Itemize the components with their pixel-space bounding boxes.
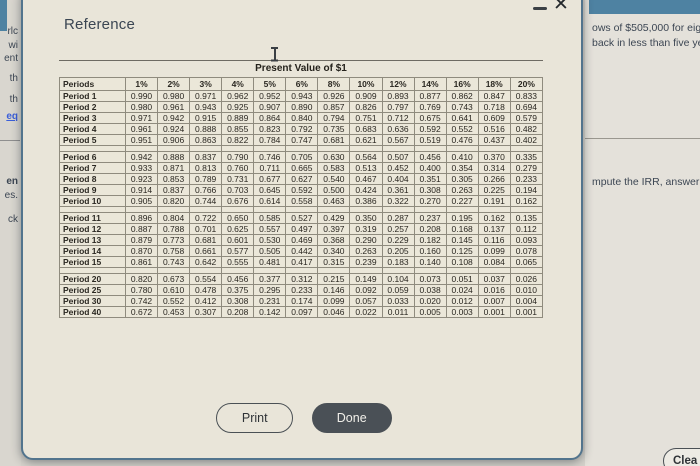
pv-value-cell: 0.555 bbox=[222, 257, 254, 268]
pv-value-cell: 0.585 bbox=[254, 213, 286, 224]
pv-value-cell: 0.361 bbox=[382, 185, 414, 196]
bg-text-fragment: es. bbox=[0, 190, 18, 201]
pv-value-cell: 0.208 bbox=[222, 307, 254, 318]
table-row: Period 40.9610.9240.8880.8550.8230.7920.… bbox=[60, 124, 543, 135]
pv-value-cell: 0.744 bbox=[190, 196, 222, 207]
pv-value-cell: 0.933 bbox=[126, 163, 158, 174]
pv-value-cell: 0.020 bbox=[414, 296, 446, 307]
pv-value-cell: 0.266 bbox=[478, 174, 510, 185]
pv-value-cell: 0.290 bbox=[350, 235, 382, 246]
pv-value-cell: 0.758 bbox=[158, 246, 190, 257]
pv-value-cell: 0.925 bbox=[222, 102, 254, 113]
pv-value-cell: 0.007 bbox=[478, 296, 510, 307]
column-header: 10% bbox=[350, 78, 382, 91]
pv-value-cell: 0.160 bbox=[414, 246, 446, 257]
bg-text-fragment: en bbox=[0, 176, 18, 187]
pv-value-cell: 0.813 bbox=[190, 163, 222, 174]
pv-value-cell: 0.857 bbox=[318, 102, 350, 113]
pv-value-cell: 0.676 bbox=[222, 196, 254, 207]
pv-value-cell: 0.833 bbox=[510, 91, 542, 102]
bg-text-fragment: rlc bbox=[0, 26, 18, 37]
pv-value-cell: 0.893 bbox=[382, 91, 414, 102]
column-header: 16% bbox=[446, 78, 478, 91]
pv-value-cell: 0.227 bbox=[446, 196, 478, 207]
table-row: Period 100.9050.8200.7440.6760.6140.5580… bbox=[60, 196, 543, 207]
pv-value-cell: 0.279 bbox=[510, 163, 542, 174]
background-page-right: ows of $505,000 for eigh back in less th… bbox=[585, 0, 700, 466]
pv-value-cell: 0.183 bbox=[382, 257, 414, 268]
pv-value-cell: 0.942 bbox=[158, 113, 190, 124]
pv-value-cell: 0.694 bbox=[510, 102, 542, 113]
pv-value-cell: 0.016 bbox=[478, 285, 510, 296]
table-row: Period 20.9800.9610.9430.9250.9070.8900.… bbox=[60, 102, 543, 113]
pv-value-cell: 0.888 bbox=[190, 124, 222, 135]
pv-value-cell: 0.766 bbox=[190, 185, 222, 196]
table-row: Period 400.6720.4530.3070.2080.1420.0970… bbox=[60, 307, 543, 318]
pv-value-cell: 0.010 bbox=[510, 285, 542, 296]
pv-value-cell: 0.769 bbox=[414, 102, 446, 113]
pv-value-cell: 0.354 bbox=[446, 163, 478, 174]
pv-value-cell: 0.711 bbox=[254, 163, 286, 174]
bg-text-fragment: th bbox=[0, 94, 18, 105]
pv-value-cell: 0.370 bbox=[478, 152, 510, 163]
pv-value-cell: 0.889 bbox=[222, 113, 254, 124]
pv-value-cell: 0.497 bbox=[286, 224, 318, 235]
pv-value-cell: 0.162 bbox=[510, 196, 542, 207]
pv-value-cell: 0.476 bbox=[446, 135, 478, 146]
pv-value-cell: 0.980 bbox=[158, 91, 190, 102]
column-header: 6% bbox=[286, 78, 318, 91]
table-row: Period 70.9330.8710.8130.7600.7110.6650.… bbox=[60, 163, 543, 174]
pv-value-cell: 0.084 bbox=[478, 257, 510, 268]
pv-value-cell: 0.022 bbox=[350, 307, 382, 318]
pv-value-cell: 0.340 bbox=[318, 246, 350, 257]
pv-value-cell: 0.463 bbox=[318, 196, 350, 207]
pv-value-cell: 0.059 bbox=[382, 285, 414, 296]
pv-value-cell: 0.099 bbox=[318, 296, 350, 307]
pv-value-cell: 0.237 bbox=[414, 213, 446, 224]
pv-value-cell: 0.429 bbox=[318, 213, 350, 224]
pv-value-cell: 0.847 bbox=[478, 91, 510, 102]
pv-value-cell: 0.097 bbox=[286, 307, 318, 318]
table-row: Period 10.9900.9800.9710.9620.9520.9430.… bbox=[60, 91, 543, 102]
dialog-title: Reference bbox=[64, 16, 135, 33]
pv-value-cell: 0.099 bbox=[478, 246, 510, 257]
pv-value-cell: 0.760 bbox=[222, 163, 254, 174]
column-header: 12% bbox=[382, 78, 414, 91]
pv-value-cell: 0.625 bbox=[222, 224, 254, 235]
period-label: Period 25 bbox=[60, 285, 126, 296]
pv-value-cell: 0.746 bbox=[254, 152, 286, 163]
column-header: 1% bbox=[126, 78, 158, 91]
table-row: Period 60.9420.8880.8370.7900.7460.7050.… bbox=[60, 152, 543, 163]
pv-value-cell: 0.701 bbox=[190, 224, 222, 235]
pv-value-cell: 0.093 bbox=[510, 235, 542, 246]
pv-value-cell: 0.864 bbox=[254, 113, 286, 124]
pv-value-cell: 0.125 bbox=[446, 246, 478, 257]
period-label: Period 5 bbox=[60, 135, 126, 146]
pv-value-cell: 0.191 bbox=[478, 196, 510, 207]
pv-value-cell: 0.990 bbox=[126, 91, 158, 102]
reference-dialog: Reference ✕ Present Value of $1 Periods1… bbox=[21, 0, 583, 460]
pv-value-cell: 0.877 bbox=[414, 91, 446, 102]
pv-value-cell: 0.926 bbox=[318, 91, 350, 102]
pv-value-cell: 0.888 bbox=[158, 152, 190, 163]
pv-value-cell: 0.424 bbox=[350, 185, 382, 196]
pv-value-cell: 0.135 bbox=[510, 213, 542, 224]
pv-value-cell: 0.905 bbox=[126, 196, 158, 207]
pv-value-cell: 0.142 bbox=[254, 307, 286, 318]
period-label: Period 9 bbox=[60, 185, 126, 196]
pv-value-cell: 0.519 bbox=[414, 135, 446, 146]
pv-value-cell: 0.037 bbox=[478, 274, 510, 285]
pv-value-cell: 0.636 bbox=[382, 124, 414, 135]
pv-value-cell: 0.712 bbox=[382, 113, 414, 124]
pv-value-cell: 0.442 bbox=[286, 246, 318, 257]
pv-value-cell: 0.377 bbox=[254, 274, 286, 285]
pv-value-cell: 0.951 bbox=[126, 135, 158, 146]
pv-value-cell: 0.149 bbox=[350, 274, 382, 285]
pv-value-cell: 0.853 bbox=[158, 174, 190, 185]
pv-value-cell: 0.665 bbox=[286, 163, 318, 174]
bg-question-text: back in less than five yea bbox=[592, 37, 700, 49]
column-header: 3% bbox=[190, 78, 222, 91]
table-row: Period 30.9710.9420.9150.8890.8640.8400.… bbox=[60, 113, 543, 124]
pv-value-cell: 0.270 bbox=[414, 196, 446, 207]
table-row: Period 250.7800.6100.4780.3750.2950.2330… bbox=[60, 285, 543, 296]
pv-value-cell: 0.961 bbox=[158, 102, 190, 113]
pv-value-cell: 0.683 bbox=[350, 124, 382, 135]
pv-value-cell: 0.003 bbox=[446, 307, 478, 318]
pv-value-cell: 0.024 bbox=[446, 285, 478, 296]
pv-value-cell: 0.862 bbox=[446, 91, 478, 102]
pv-value-cell: 0.001 bbox=[478, 307, 510, 318]
pv-value-cell: 0.577 bbox=[222, 246, 254, 257]
pv-value-cell: 0.780 bbox=[126, 285, 158, 296]
background-page-left: rlc wi ent th th eq en es. ck bbox=[0, 0, 21, 466]
pv-value-cell: 0.722 bbox=[190, 213, 222, 224]
table-row: Period 300.7420.5520.4120.3080.2310.1740… bbox=[60, 296, 543, 307]
pv-value-cell: 0.943 bbox=[190, 102, 222, 113]
pv-value-cell: 0.837 bbox=[158, 185, 190, 196]
pv-value-cell: 0.386 bbox=[350, 196, 382, 207]
pv-value-cell: 0.375 bbox=[222, 285, 254, 296]
period-label: Period 10 bbox=[60, 196, 126, 207]
table-row: Period 90.9140.8370.7660.7030.6450.5920.… bbox=[60, 185, 543, 196]
pv-value-cell: 0.456 bbox=[222, 274, 254, 285]
bg-text-fragment: ent bbox=[0, 53, 18, 64]
pv-value-cell: 0.453 bbox=[158, 307, 190, 318]
pv-value-cell: 0.233 bbox=[510, 174, 542, 185]
pv-value-cell: 0.863 bbox=[190, 135, 222, 146]
minimize-icon[interactable] bbox=[533, 7, 547, 10]
pv-value-cell: 0.924 bbox=[158, 124, 190, 135]
pv-value-cell: 0.804 bbox=[158, 213, 190, 224]
pv-value-cell: 0.705 bbox=[286, 152, 318, 163]
pv-value-cell: 0.305 bbox=[446, 174, 478, 185]
pv-value-cell: 0.404 bbox=[382, 174, 414, 185]
pv-value-cell: 0.162 bbox=[478, 213, 510, 224]
pv-value-cell: 0.182 bbox=[414, 235, 446, 246]
pv-value-cell: 0.308 bbox=[414, 185, 446, 196]
pv-table-section: Present Value of $1 Periods1%2%3%4%5%6%8… bbox=[59, 60, 543, 318]
pv-value-cell: 0.962 bbox=[222, 91, 254, 102]
pv-value-cell: 0.307 bbox=[190, 307, 222, 318]
pv-value-cell: 0.038 bbox=[414, 285, 446, 296]
pv-value-cell: 0.112 bbox=[510, 224, 542, 235]
pv-value-cell: 0.452 bbox=[382, 163, 414, 174]
pv-value-cell: 0.469 bbox=[286, 235, 318, 246]
pv-value-cell: 0.263 bbox=[446, 185, 478, 196]
pv-value-cell: 0.703 bbox=[222, 185, 254, 196]
pv-value-cell: 0.747 bbox=[286, 135, 318, 146]
pv-value-cell: 0.505 bbox=[254, 246, 286, 257]
period-label: Period 7 bbox=[60, 163, 126, 174]
pv-value-cell: 0.909 bbox=[350, 91, 382, 102]
period-label: Period 4 bbox=[60, 124, 126, 135]
table-row: Period 200.8200.6730.5540.4560.3770.3120… bbox=[60, 274, 543, 285]
period-label: Period 15 bbox=[60, 257, 126, 268]
pv-value-cell: 0.295 bbox=[254, 285, 286, 296]
pv-value-cell: 0.231 bbox=[254, 296, 286, 307]
bg-divider bbox=[585, 138, 700, 139]
pv-value-cell: 0.116 bbox=[478, 235, 510, 246]
pv-value-cell: 0.870 bbox=[126, 246, 158, 257]
pv-value-cell: 0.402 bbox=[510, 135, 542, 146]
pv-value-cell: 0.417 bbox=[286, 257, 318, 268]
pv-value-cell: 0.140 bbox=[414, 257, 446, 268]
pv-value-cell: 0.681 bbox=[318, 135, 350, 146]
pv-value-cell: 0.788 bbox=[158, 224, 190, 235]
pv-value-cell: 0.610 bbox=[158, 285, 190, 296]
pv-value-cell: 0.239 bbox=[350, 257, 382, 268]
pv-value-cell: 0.012 bbox=[446, 296, 478, 307]
pv-value-cell: 0.092 bbox=[350, 285, 382, 296]
pv-value-cell: 0.879 bbox=[126, 235, 158, 246]
pv-value-cell: 0.840 bbox=[286, 113, 318, 124]
pv-value-cell: 0.500 bbox=[318, 185, 350, 196]
pv-value-cell: 0.942 bbox=[126, 152, 158, 163]
pv-value-cell: 0.046 bbox=[318, 307, 350, 318]
period-label: Period 12 bbox=[60, 224, 126, 235]
print-button[interactable]: Print bbox=[216, 403, 293, 433]
pv-value-cell: 0.145 bbox=[446, 235, 478, 246]
pv-value-cell: 0.065 bbox=[510, 257, 542, 268]
pv-value-cell: 0.675 bbox=[414, 113, 446, 124]
pv-value-cell: 0.773 bbox=[158, 235, 190, 246]
table-row: Period 150.8610.7430.6420.5550.4810.4170… bbox=[60, 257, 543, 268]
pv-value-cell: 0.823 bbox=[254, 124, 286, 135]
column-header: 18% bbox=[478, 78, 510, 91]
pv-value-cell: 0.552 bbox=[158, 296, 190, 307]
table-title: Present Value of $1 bbox=[59, 63, 543, 74]
bg-question-text: ows of $505,000 for eigh bbox=[592, 22, 700, 34]
pv-value-cell: 0.735 bbox=[318, 124, 350, 135]
pv-value-cell: 0.557 bbox=[254, 224, 286, 235]
pv-value-cell: 0.229 bbox=[382, 235, 414, 246]
pv-value-cell: 0.642 bbox=[190, 257, 222, 268]
pv-value-cell: 0.583 bbox=[318, 163, 350, 174]
period-label: Period 13 bbox=[60, 235, 126, 246]
pv-value-cell: 0.743 bbox=[158, 257, 190, 268]
pv-value-cell: 0.887 bbox=[126, 224, 158, 235]
pv-value-cell: 0.194 bbox=[510, 185, 542, 196]
pv-value-cell: 0.871 bbox=[158, 163, 190, 174]
dialog-actions: Print Done bbox=[23, 403, 585, 433]
pv-value-cell: 0.026 bbox=[510, 274, 542, 285]
pv-value-cell: 0.530 bbox=[254, 235, 286, 246]
period-label: Period 6 bbox=[60, 152, 126, 163]
pv-value-cell: 0.263 bbox=[350, 246, 382, 257]
column-header: 8% bbox=[318, 78, 350, 91]
pv-value-cell: 0.820 bbox=[126, 274, 158, 285]
pv-value-cell: 0.481 bbox=[254, 257, 286, 268]
pv-value-cell: 0.467 bbox=[350, 174, 382, 185]
pv-value-cell: 0.437 bbox=[478, 135, 510, 146]
pv-value-cell: 0.004 bbox=[510, 296, 542, 307]
pv-value-cell: 0.108 bbox=[446, 257, 478, 268]
pv-value-cell: 0.630 bbox=[318, 152, 350, 163]
pv-value-cell: 0.790 bbox=[222, 152, 254, 163]
pv-value-cell: 0.980 bbox=[126, 102, 158, 113]
pv-value-cell: 0.797 bbox=[382, 102, 414, 113]
pv-value-cell: 0.731 bbox=[222, 174, 254, 185]
pv-value-cell: 0.146 bbox=[318, 285, 350, 296]
pv-value-cell: 0.915 bbox=[190, 113, 222, 124]
pv-value-cell: 0.410 bbox=[446, 152, 478, 163]
pv-value-cell: 0.225 bbox=[478, 185, 510, 196]
pv-value-cell: 0.482 bbox=[510, 124, 542, 135]
background-header-bar bbox=[589, 0, 700, 14]
period-label: Period 11 bbox=[60, 213, 126, 224]
clear-answer-button[interactable]: Clea bbox=[663, 448, 700, 466]
pv-value-cell: 0.554 bbox=[190, 274, 222, 285]
pv-value-cell: 0.601 bbox=[222, 235, 254, 246]
pv-value-cell: 0.742 bbox=[126, 296, 158, 307]
table-row: Period 130.8790.7730.6810.6010.5300.4690… bbox=[60, 235, 543, 246]
column-header: Periods bbox=[60, 78, 126, 91]
pv-value-cell: 0.005 bbox=[414, 307, 446, 318]
pv-value-cell: 0.513 bbox=[350, 163, 382, 174]
bg-text-fragment: wi bbox=[0, 40, 18, 51]
pv-value-cell: 0.073 bbox=[414, 274, 446, 285]
pv-value-cell: 0.368 bbox=[318, 235, 350, 246]
pv-value-cell: 0.971 bbox=[190, 91, 222, 102]
period-label: Period 20 bbox=[60, 274, 126, 285]
pv-value-cell: 0.001 bbox=[510, 307, 542, 318]
pv-value-cell: 0.033 bbox=[382, 296, 414, 307]
pv-value-cell: 0.661 bbox=[190, 246, 222, 257]
pv-value-cell: 0.627 bbox=[286, 174, 318, 185]
pv-value-cell: 0.051 bbox=[446, 274, 478, 285]
pv-value-cell: 0.351 bbox=[414, 174, 446, 185]
pv-value-cell: 0.677 bbox=[254, 174, 286, 185]
column-header: 4% bbox=[222, 78, 254, 91]
table-row: Period 140.8700.7580.6610.5770.5050.4420… bbox=[60, 246, 543, 257]
pv-value-cell: 0.718 bbox=[478, 102, 510, 113]
pv-value-cell: 0.195 bbox=[446, 213, 478, 224]
pv-value-cell: 0.751 bbox=[350, 113, 382, 124]
pv-value-cell: 0.168 bbox=[446, 224, 478, 235]
pv-value-cell: 0.890 bbox=[286, 102, 318, 113]
pv-value-cell: 0.971 bbox=[126, 113, 158, 124]
column-header: 2% bbox=[158, 78, 190, 91]
pv-value-cell: 0.104 bbox=[382, 274, 414, 285]
period-label: Period 14 bbox=[60, 246, 126, 257]
pv-value-cell: 0.645 bbox=[254, 185, 286, 196]
pv-value-cell: 0.205 bbox=[382, 246, 414, 257]
pv-value-cell: 0.907 bbox=[254, 102, 286, 113]
pv-value-cell: 0.681 bbox=[190, 235, 222, 246]
pv-value-cell: 0.057 bbox=[350, 296, 382, 307]
pv-value-cell: 0.914 bbox=[126, 185, 158, 196]
pv-table: Periods1%2%3%4%5%6%8%10%12%14%16%18%20%P… bbox=[59, 77, 543, 318]
pv-value-cell: 0.516 bbox=[478, 124, 510, 135]
pv-value-cell: 0.614 bbox=[254, 196, 286, 207]
period-label: Period 40 bbox=[60, 307, 126, 318]
period-label: Period 30 bbox=[60, 296, 126, 307]
pv-value-cell: 0.507 bbox=[382, 152, 414, 163]
period-label: Period 2 bbox=[60, 102, 126, 113]
pv-value-cell: 0.672 bbox=[126, 307, 158, 318]
bg-text-fragment: th bbox=[0, 73, 18, 84]
bg-text-fragment: ck bbox=[0, 214, 18, 225]
period-label: Period 8 bbox=[60, 174, 126, 185]
pv-value-cell: 0.567 bbox=[382, 135, 414, 146]
pv-value-cell: 0.287 bbox=[382, 213, 414, 224]
pv-value-cell: 0.174 bbox=[286, 296, 318, 307]
pv-value-cell: 0.906 bbox=[158, 135, 190, 146]
pv-value-cell: 0.794 bbox=[318, 113, 350, 124]
pv-value-cell: 0.792 bbox=[286, 124, 318, 135]
pv-value-cell: 0.961 bbox=[126, 124, 158, 135]
pv-value-cell: 0.335 bbox=[510, 152, 542, 163]
pv-value-cell: 0.822 bbox=[222, 135, 254, 146]
pv-value-cell: 0.233 bbox=[286, 285, 318, 296]
done-button[interactable]: Done bbox=[312, 403, 392, 433]
pv-value-cell: 0.579 bbox=[510, 113, 542, 124]
pv-value-cell: 0.621 bbox=[350, 135, 382, 146]
pv-value-cell: 0.314 bbox=[478, 163, 510, 174]
table-row: Period 50.9510.9060.8630.8220.7840.7470.… bbox=[60, 135, 543, 146]
table-header-row: Periods1%2%3%4%5%6%8%10%12%14%16%18%20% bbox=[60, 78, 543, 91]
pv-value-cell: 0.923 bbox=[126, 174, 158, 185]
period-label: Period 1 bbox=[60, 91, 126, 102]
pv-value-cell: 0.592 bbox=[286, 185, 318, 196]
pv-value-cell: 0.215 bbox=[318, 274, 350, 285]
pv-value-cell: 0.861 bbox=[126, 257, 158, 268]
pv-value-cell: 0.952 bbox=[254, 91, 286, 102]
pv-value-cell: 0.257 bbox=[382, 224, 414, 235]
pv-value-cell: 0.943 bbox=[286, 91, 318, 102]
pv-value-cell: 0.456 bbox=[414, 152, 446, 163]
bg-link-fragment[interactable]: eq bbox=[0, 111, 18, 122]
pv-value-cell: 0.540 bbox=[318, 174, 350, 185]
pv-value-cell: 0.137 bbox=[478, 224, 510, 235]
pv-value-cell: 0.350 bbox=[350, 213, 382, 224]
table-row: Period 80.9230.8530.7890.7310.6770.6270.… bbox=[60, 174, 543, 185]
close-icon[interactable]: ✕ bbox=[550, 0, 572, 16]
table-row: Period 110.8960.8040.7220.6500.5850.5270… bbox=[60, 213, 543, 224]
table-row: Period 120.8870.7880.7010.6250.5570.4970… bbox=[60, 224, 543, 235]
pv-value-cell: 0.527 bbox=[286, 213, 318, 224]
pv-value-cell: 0.789 bbox=[190, 174, 222, 185]
pv-value-cell: 0.319 bbox=[350, 224, 382, 235]
pv-value-cell: 0.564 bbox=[350, 152, 382, 163]
pv-value-cell: 0.400 bbox=[414, 163, 446, 174]
pv-value-cell: 0.826 bbox=[350, 102, 382, 113]
pv-value-cell: 0.650 bbox=[222, 213, 254, 224]
